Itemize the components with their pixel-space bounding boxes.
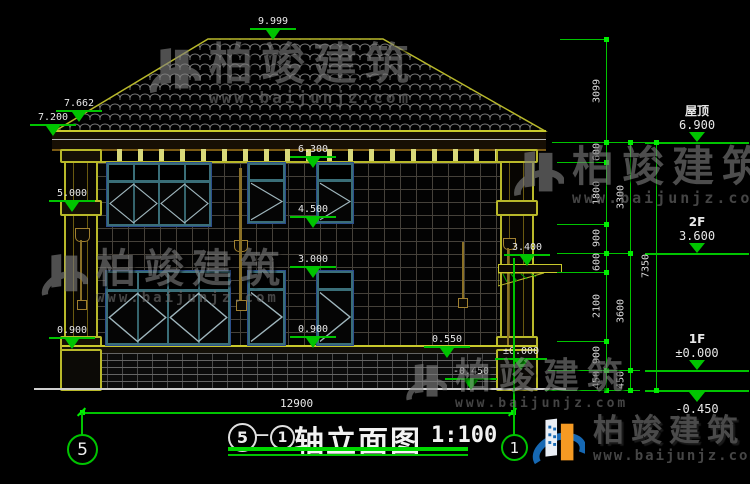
- level-marker-ridge: 9.999: [250, 16, 296, 40]
- watermark-logo-icon: [38, 248, 88, 306]
- casement-pane: [250, 182, 283, 221]
- cad-elevation-drawing: 9.999 7.662 7.200 5.000 0.900 6.300 4.50…: [0, 0, 750, 484]
- watermark: 柏竣建筑 www.baijunjz.com: [403, 358, 631, 411]
- level-marker-1f-window-head: 3.000: [290, 254, 336, 278]
- level-marker-sill-left: 0.900: [49, 325, 95, 349]
- dim-value: 7350: [641, 254, 652, 278]
- dim-value: 3099: [592, 79, 603, 103]
- floor-marker-1f: 1F ±0.000: [645, 333, 749, 372]
- dim-value: 600: [592, 253, 603, 271]
- downpipe-hopper: [75, 228, 90, 242]
- window-pane: [135, 165, 161, 180]
- overall-dim-value: 12900: [280, 397, 313, 410]
- window-pane: [186, 165, 210, 180]
- dim-value: 2100: [592, 294, 603, 318]
- axis-bubble-5: 5: [67, 434, 98, 465]
- floor-marker-roof: 屋顶 6.900: [645, 105, 749, 144]
- floor-marker-2f: 2F 3.600: [645, 216, 749, 255]
- window-pane: [250, 165, 283, 179]
- downpipe: [462, 242, 464, 300]
- casement-pair: [109, 183, 160, 224]
- level-marker-pilaster-cap: 5.000: [49, 188, 95, 212]
- watermark-logo-icon: [145, 42, 201, 104]
- brand-logo-icon: [531, 414, 585, 472]
- title-dash: —: [255, 427, 269, 443]
- axis-bubble-1: 1: [501, 434, 528, 461]
- window-pane: [160, 165, 186, 180]
- title-underline: [228, 447, 468, 451]
- level-marker-2f-window-sill: 4.500: [290, 204, 336, 228]
- canopy-bracket: [498, 273, 546, 288]
- level-marker-2f-window-head: 6.300: [290, 144, 336, 168]
- level-marker-eave: 7.200: [30, 112, 76, 136]
- brand-logo: 柏竣建筑 www.baijunjz.com: [531, 414, 750, 472]
- watermark: 柏竣建筑 www.baijunjz.com: [510, 145, 750, 207]
- level-marker-plinth: 0.550: [424, 334, 470, 358]
- overall-dim-line: [82, 412, 514, 414]
- drawing-scale: 1:100: [431, 423, 497, 448]
- watermark: 柏竣建筑 www.baijunjz.com: [145, 42, 417, 107]
- watermark-logo-icon: [403, 358, 447, 410]
- pedestal-left: [60, 349, 102, 391]
- watermark-logo-icon: [510, 145, 564, 207]
- dim-chain-inner: [606, 39, 607, 390]
- watermark: 柏竣建筑 www.baijunjz.com: [38, 248, 288, 306]
- window-2f-narrow-1: [248, 163, 285, 223]
- dim-value: 900: [592, 229, 603, 247]
- downpipe-shoe: [458, 298, 468, 308]
- dim-value: 3600: [616, 299, 627, 323]
- window-2f-large: [107, 163, 211, 226]
- level-marker-canopy: 3.400: [504, 242, 550, 266]
- level-marker-1f-window-sill: 0.900: [290, 324, 336, 348]
- casement-pair: [160, 183, 209, 224]
- window-pane: [109, 165, 135, 180]
- pilaster-left-top-cap: [60, 149, 102, 163]
